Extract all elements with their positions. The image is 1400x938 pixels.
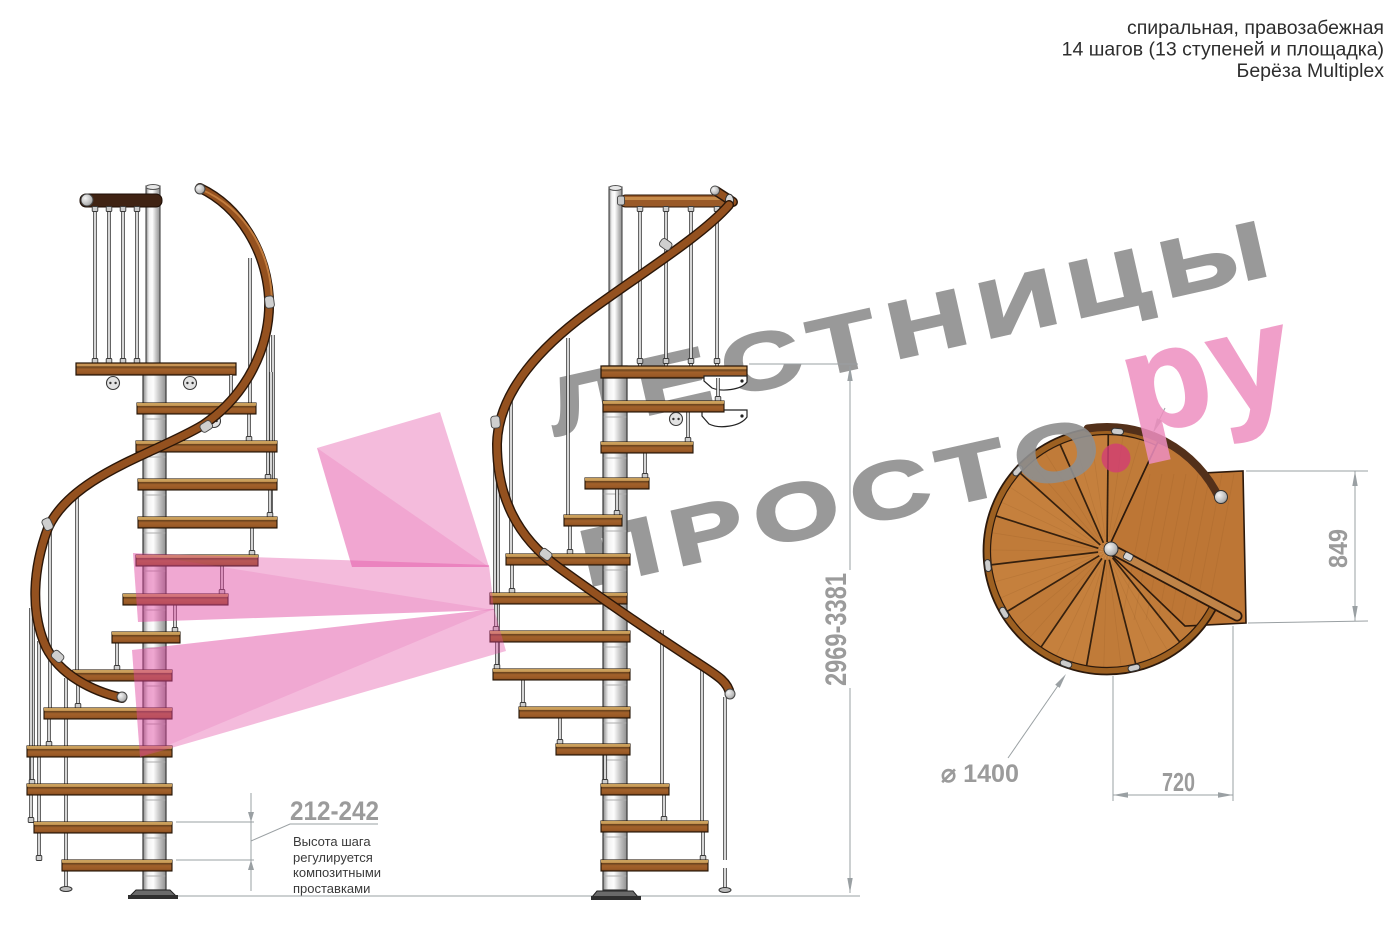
svg-text:Высота шага: Высота шага bbox=[293, 834, 371, 849]
svg-text:14 шагов (13 ступеней и площад: 14 шагов (13 ступеней и площадка) bbox=[1062, 39, 1384, 61]
svg-text:композитными: композитными bbox=[293, 865, 381, 880]
svg-text:212-242: 212-242 bbox=[290, 796, 379, 826]
svg-text:регулируется: регулируется bbox=[293, 850, 373, 865]
svg-text:проставками: проставками bbox=[293, 881, 370, 896]
svg-text:849: 849 bbox=[1323, 529, 1353, 568]
svg-text:720: 720 bbox=[1162, 767, 1195, 797]
svg-text:⌀ 1400: ⌀ 1400 bbox=[941, 760, 1019, 788]
svg-text:2969-3381: 2969-3381 bbox=[820, 573, 853, 686]
svg-text:спиральная, правозабежная: спиральная, правозабежная bbox=[1127, 17, 1384, 39]
svg-text:Берёза Multiplex: Берёза Multiplex bbox=[1237, 60, 1385, 82]
